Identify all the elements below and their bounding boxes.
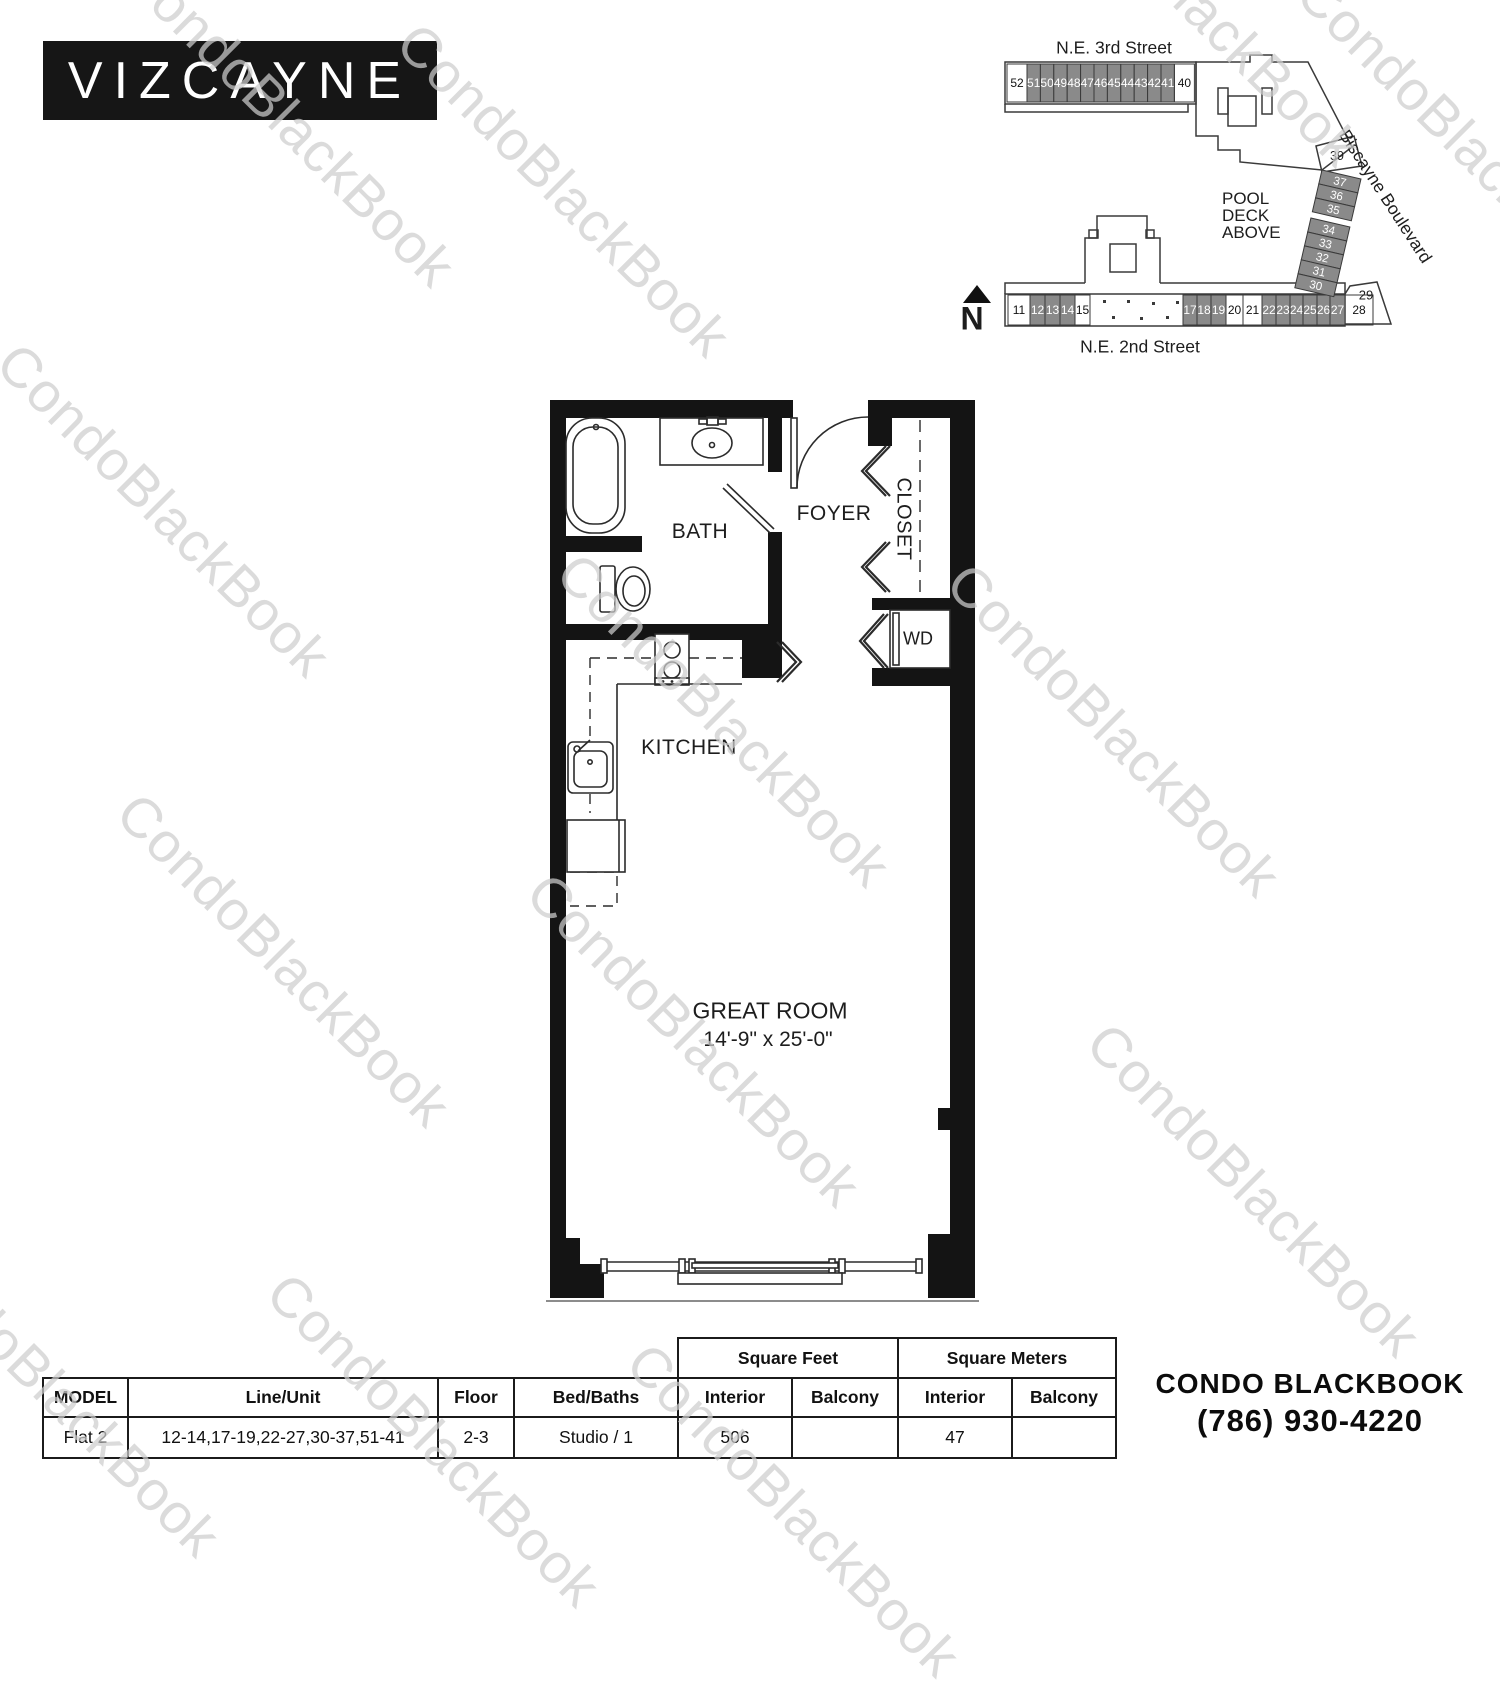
siteplan-unit-number: 26 (1317, 303, 1331, 317)
north-label: N (960, 301, 983, 338)
pool-deck-label-line: ABOVE (1222, 224, 1281, 241)
flyer-page: CondoBlackBookCondoBlackBookCondoBlackBo… (0, 0, 1500, 1500)
siteplan-unit-number: 40 (1178, 76, 1192, 90)
table-header-cell: Bed/Baths (514, 1378, 678, 1417)
table-group-header-row: Square Feet Square Meters (43, 1338, 1116, 1378)
table-header-cell: Floor (438, 1378, 514, 1417)
siteplan-unit-number: 21 (1246, 303, 1260, 317)
siteplan-unit-cells: 5251504948474645444342414011121314151718… (1007, 64, 1373, 325)
table-header-cell: Balcony (792, 1378, 898, 1417)
siteplan-unit-number: 11 (1013, 303, 1026, 317)
table-data-cell: Studio / 1 (514, 1417, 678, 1458)
siteplan-unit-number: 41 (1161, 76, 1175, 90)
room-label-bath: BATH (672, 520, 728, 544)
siteplan-unit-number: 17 (1183, 303, 1197, 317)
siteplan-unit-number: 19 (1212, 303, 1226, 317)
vizcayne-logo: VIZCAYNE (43, 41, 437, 120)
table-data-cell: 506 (678, 1417, 792, 1458)
room-label-wd: WD (903, 629, 933, 650)
vizcayne-logo-text: VIZCAYNE (68, 55, 412, 107)
siteplan-unit-number: 22 (1262, 303, 1276, 317)
siteplan-unit-number: 15 (1076, 303, 1090, 317)
pool-deck-label-line: POOL (1222, 190, 1281, 207)
table-data-cell (792, 1417, 898, 1458)
pool-deck-label-line: DECK (1222, 207, 1281, 224)
table-data-cell: 12-14,17-19,22-27,30-37,51-41 (128, 1417, 438, 1458)
siteplan-unit-number: 25 (1303, 303, 1317, 317)
siteplan-unit-number: 48 (1067, 76, 1081, 90)
siteplan-unit-number: 47 (1081, 76, 1095, 90)
street-label-ne-2nd: N.E. 2nd Street (1080, 337, 1200, 358)
siteplan-right-strip: 3736353433323130 (1295, 170, 1361, 297)
room-label-great-room: GREAT ROOM (692, 998, 847, 1025)
room-label-foyer: FOYER (797, 502, 872, 526)
siteplan-unit-number: 14 (1061, 303, 1075, 317)
table-header-cell: MODEL (43, 1378, 128, 1417)
footer-brand: CONDO BLACKBOOK (786) 930-4220 (1130, 1368, 1490, 1439)
siteplan-unit-number: 43 (1134, 76, 1148, 90)
table-header-row: MODELLine/UnitFloorBed/BathsInteriorBalc… (43, 1378, 1116, 1417)
siteplan-unit-number: 18 (1197, 303, 1211, 317)
siteplan-unit-number: 28 (1352, 303, 1366, 317)
siteplan-unit-number: 45 (1107, 76, 1121, 90)
siteplan-unit-number: 52 (1010, 76, 1024, 90)
siteplan-unit-number: 46 (1094, 76, 1108, 90)
table-header-cell: Line/Unit (128, 1378, 438, 1417)
siteplan-unit-number: 49 (1054, 76, 1068, 90)
group-header-square-meters: Square Meters (898, 1338, 1116, 1378)
brand-phone: (786) 930-4220 (1130, 1403, 1490, 1439)
brand-name: CONDO BLACKBOOK (1130, 1368, 1490, 1400)
table-data-cell: 47 (898, 1417, 1012, 1458)
siteplan-unit-39: 39 (1330, 149, 1344, 163)
siteplan-unit-number: 42 (1148, 76, 1162, 90)
siteplan-unit-number: 12 (1031, 303, 1045, 317)
siteplan-unit-29: 29 (1359, 288, 1373, 303)
table-data-row: Flat 212-14,17-19,22-27,30-37,51-412-3St… (43, 1417, 1116, 1458)
group-header-square-feet: Square Feet (678, 1338, 898, 1378)
spec-table: Square Feet Square Meters MODELLine/Unit… (42, 1337, 1117, 1459)
siteplan-unit-number: 44 (1121, 76, 1135, 90)
table-header-cell: Balcony (1012, 1378, 1116, 1417)
table-header-cell: Interior (898, 1378, 1012, 1417)
street-label-ne-3rd: N.E. 3rd Street (1056, 38, 1172, 59)
room-label-closet: CLOSET (892, 477, 915, 560)
table-data-cell: Flat 2 (43, 1417, 128, 1458)
great-room-dimensions: 14'-9" x 25'-0" (703, 1028, 832, 1052)
table-data-cell (1012, 1417, 1116, 1458)
room-label-kitchen: KITCHEN (641, 736, 737, 760)
pool-deck-label: POOLDECKABOVE (1222, 190, 1281, 241)
siteplan-unit-number: 20 (1228, 303, 1242, 317)
table-data-cell: 2-3 (438, 1417, 514, 1458)
table-header-cell: Interior (678, 1378, 792, 1417)
siteplan-unit-number: 27 (1331, 303, 1345, 317)
siteplan-unit-number: 51 (1027, 76, 1041, 90)
siteplan-unit-number: 24 (1290, 303, 1304, 317)
siteplan-unit-number: 50 (1040, 76, 1054, 90)
siteplan-unit-number: 13 (1046, 303, 1060, 317)
siteplan-unit-number: 23 (1276, 303, 1290, 317)
